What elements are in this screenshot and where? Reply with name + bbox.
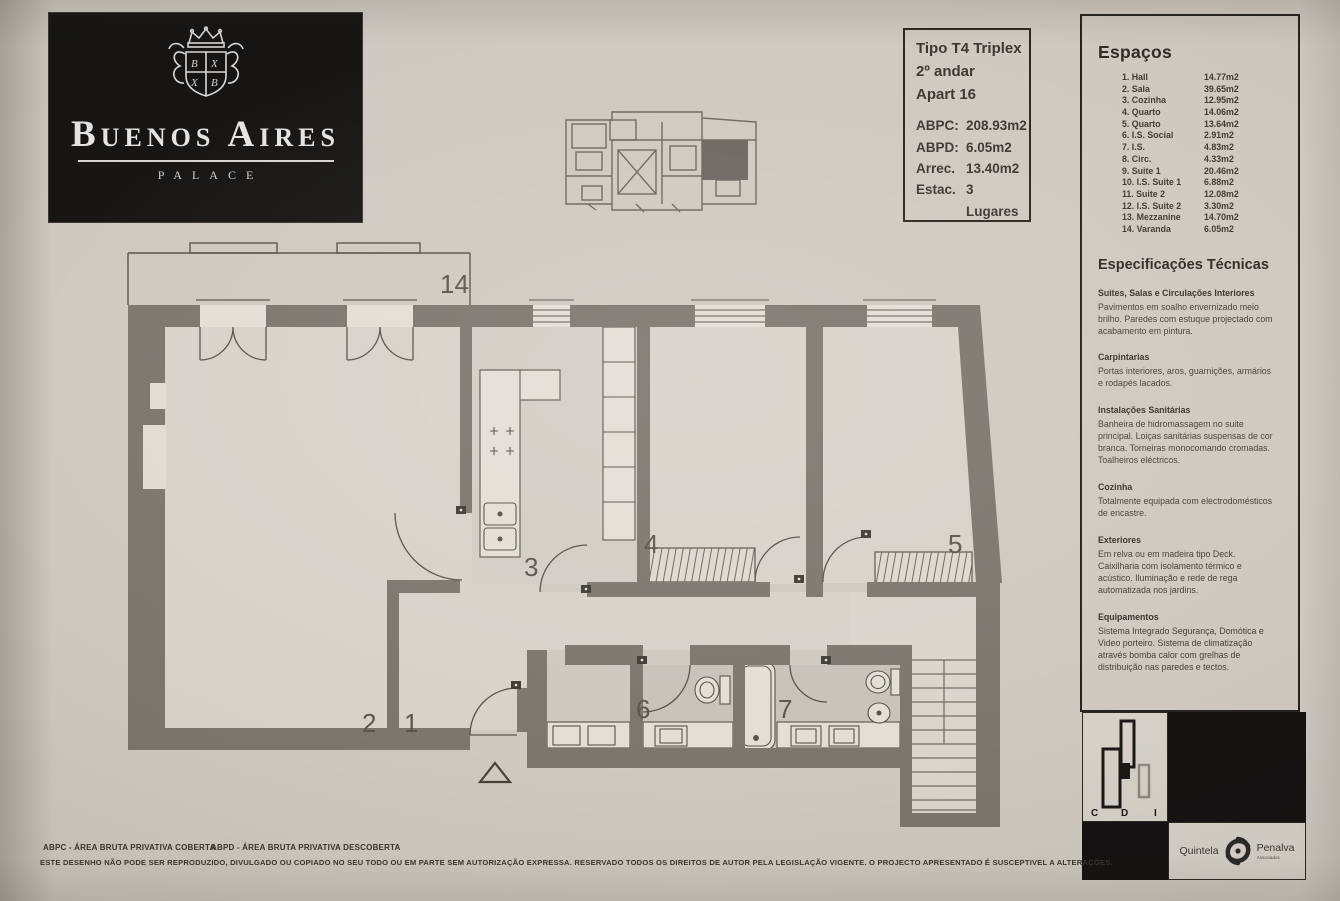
space-row: 11. Suite 212.08m2 — [1122, 189, 1286, 201]
buenos-aires-logo-box: BX XB Buenos Aires PALACE — [48, 12, 363, 223]
metric-label: Estac. — [916, 179, 966, 222]
entrance-arrow — [480, 763, 510, 782]
space-row: 4. Quarto14.06m2 — [1122, 107, 1286, 119]
space-area: 6.05m2 — [1204, 224, 1286, 236]
metric-arrec: Arrec. 13.40m2 — [916, 158, 1029, 179]
space-area: 4.83m2 — [1204, 142, 1286, 154]
brand-block: C D I Quintela Penalva Associados — [1082, 712, 1306, 880]
space-area: 14.70m2 — [1204, 212, 1286, 224]
space-label: 6. I.S. Social — [1122, 130, 1204, 142]
penalva-sublabel: Associados — [1257, 855, 1280, 860]
cdi-letter-d: D — [1121, 808, 1128, 819]
space-row: 12. I.S. Suite 23.30m2 — [1122, 201, 1286, 213]
abpd-definition: ABPD - ÁREA BRUTA PRIVATIVA DESCOBERTA — [211, 843, 401, 852]
brand-subtitle: PALACE — [148, 168, 264, 183]
room-label-is: 7 — [778, 694, 792, 724]
unit-metrics: ABPC: 208.93m2 ABPD: 6.05m2 Arrec. 13.40… — [916, 115, 1029, 222]
cdi-logo-box: C D I — [1082, 712, 1168, 822]
spec-section: Suites, Salas e Circulações InterioresPa… — [1098, 288, 1286, 338]
room-label-hall: 1 — [404, 708, 418, 738]
room-label-cozinha: 3 — [524, 552, 538, 582]
spec-heading: Instalações Sanitárias — [1098, 405, 1286, 415]
spec-body: Totalmente equipada com electrodoméstico… — [1098, 496, 1276, 520]
unit-info-box: Tipo T4 Triplex 2º andar Apart 16 ABPC: … — [903, 28, 1031, 222]
metric-value: 13.40m2 — [966, 158, 1029, 179]
space-label: 3. Cozinha — [1122, 95, 1204, 107]
space-label: 7. I.S. — [1122, 142, 1204, 154]
space-label: 5. Quarto — [1122, 119, 1204, 131]
svg-text:X: X — [190, 77, 199, 89]
unit-floor: 2º andar — [916, 61, 1029, 84]
space-row: 1. Hall14.77m2 — [1122, 72, 1286, 84]
cdi-logo-icon: C D I — [1083, 713, 1166, 820]
cdi-letter-i: I — [1154, 808, 1157, 819]
spec-body: Portas interiores, aros, guarnições, arm… — [1098, 366, 1276, 390]
metric-label: ABPC: — [916, 115, 966, 136]
space-area: 14.77m2 — [1204, 72, 1286, 84]
brand-rule — [78, 160, 334, 162]
space-label: 12. I.S. Suite 2 — [1122, 201, 1204, 213]
space-area: 4.33m2 — [1204, 154, 1286, 166]
space-label: 11. Suite 2 — [1122, 189, 1204, 201]
spec-section: EquipamentosSistema Integrado Segurança,… — [1098, 612, 1286, 674]
space-row: 5. Quarto13.64m2 — [1122, 119, 1286, 131]
metric-label: ABPD: — [916, 137, 966, 158]
space-row: 13. Mezzanine14.70m2 — [1122, 212, 1286, 224]
space-row: 8. Circ.4.33m2 — [1122, 154, 1286, 166]
metric-label: Arrec. — [916, 158, 966, 179]
quintela-label: Quintela — [1179, 845, 1218, 857]
svg-text:B: B — [211, 77, 218, 89]
spec-section: CarpintariasPortas interiores, aros, gua… — [1098, 352, 1286, 390]
quintela-penalva-swirl-icon — [1223, 833, 1253, 869]
space-row: 6. I.S. Social2.91m2 — [1122, 130, 1286, 142]
svg-text:B: B — [191, 58, 198, 70]
copyright-disclaimer: ESTE DESENHO NÃO PODE SER REPRODUZIDO, D… — [40, 858, 1113, 867]
space-area: 6.88m2 — [1204, 177, 1286, 189]
specs-sections: Suites, Salas e Circulações InterioresPa… — [1098, 288, 1286, 674]
spec-body: Sistema Integrado Segurança, Domótica e … — [1098, 626, 1276, 674]
space-label: 1. Hall — [1122, 72, 1204, 84]
storage-fixtures — [547, 722, 630, 748]
scanned-floorplan-sheet: BX XB Buenos Aires PALACE Tipo T4 Triple… — [0, 0, 1340, 901]
space-label: 4. Quarto — [1122, 107, 1204, 119]
metric-estac: Estac. 3 Lugares — [916, 179, 1029, 222]
spec-body: Banheira de hidromassagem no suite princ… — [1098, 419, 1276, 467]
penalva-label: Penalva — [1257, 842, 1295, 854]
spec-heading: Suites, Salas e Circulações Interiores — [1098, 288, 1286, 298]
location-key-plan — [552, 100, 767, 222]
spec-heading: Exteriores — [1098, 535, 1286, 545]
abpc-definition: ABPC - ÁREA BRUTA PRIVATIVA COBERTA — [43, 843, 215, 852]
space-area: 39.65m2 — [1204, 84, 1286, 96]
room-label-quarto4: 4 — [644, 529, 658, 559]
black-panel-bottom — [1082, 822, 1168, 880]
unit-type: Tipo T4 Triplex — [916, 38, 1029, 61]
space-area: 12.95m2 — [1204, 95, 1286, 107]
heraldic-crest-icon: BX XB — [131, 26, 281, 114]
specs-title: Especificações Técnicas — [1098, 257, 1286, 273]
space-label: 10. I.S. Suite 1 — [1122, 177, 1204, 189]
space-label: 14. Varanda — [1122, 224, 1204, 236]
spec-body: Pavimentos em soalho envernizado meio br… — [1098, 302, 1276, 338]
space-area: 14.06m2 — [1204, 107, 1286, 119]
space-label: 13. Mezzanine — [1122, 212, 1204, 224]
space-area: 12.08m2 — [1204, 189, 1286, 201]
space-area: 20.46m2 — [1204, 166, 1286, 178]
space-row: 9. Suite 120.46m2 — [1122, 166, 1286, 178]
space-row: 2. Sala39.65m2 — [1122, 84, 1286, 96]
space-row: 7. I.S.4.83m2 — [1122, 142, 1286, 154]
space-label: 2. Sala — [1122, 84, 1204, 96]
spec-heading: Cozinha — [1098, 482, 1286, 492]
spec-body: Em relva ou em madeira tipo Deck. Caixil… — [1098, 549, 1276, 597]
metric-value: 6.05m2 — [966, 137, 1029, 158]
unit-number: Apart 16 — [916, 84, 1029, 107]
spec-section: CozinhaTotalmente equipada com electrodo… — [1098, 482, 1286, 520]
space-label: 8. Circ. — [1122, 154, 1204, 166]
space-area: 2.91m2 — [1204, 130, 1286, 142]
svg-text:X: X — [210, 58, 219, 70]
space-area: 13.64m2 — [1204, 119, 1286, 131]
spec-heading: Carpintarias — [1098, 352, 1286, 362]
apartment-location-highlight — [702, 140, 748, 180]
cdi-letter-c: C — [1091, 808, 1098, 819]
floor-plan-drawing: 14 2 1 3 4 5 6 7 — [110, 235, 1010, 845]
brand-name: Buenos Aires — [71, 116, 340, 153]
metric-value: 3 Lugares — [966, 179, 1029, 222]
space-row: 10. I.S. Suite 16.88m2 — [1122, 177, 1286, 189]
metric-abpc: ABPC: 208.93m2 — [916, 115, 1029, 136]
room-label-quarto5: 5 — [948, 529, 962, 559]
spaces-list: 1. Hall14.77m22. Sala39.65m23. Cozinha12… — [1098, 72, 1286, 236]
metric-abpd: ABPD: 6.05m2 — [916, 137, 1029, 158]
room-label-sala: 2 — [362, 708, 376, 738]
room-label-varanda: 14 — [440, 269, 469, 299]
spec-section: Instalações SanitáriasBanheira de hidrom… — [1098, 405, 1286, 467]
room-label-is-social: 6 — [636, 694, 650, 724]
quintela-penalva-logo-box: Quintela Penalva Associados — [1168, 822, 1306, 880]
black-panel-top — [1168, 712, 1306, 822]
space-label: 9. Suite 1 — [1122, 166, 1204, 178]
balcony-outline — [128, 243, 470, 305]
spec-heading: Equipamentos — [1098, 612, 1286, 622]
space-row: 3. Cozinha12.95m2 — [1122, 95, 1286, 107]
spec-section: ExterioresEm relva ou em madeira tipo De… — [1098, 535, 1286, 597]
metric-value: 208.93m2 — [966, 115, 1029, 136]
spaces-title: Espaços — [1098, 42, 1286, 63]
space-row: 14. Varanda6.05m2 — [1122, 224, 1286, 236]
space-area: 3.30m2 — [1204, 201, 1286, 213]
spec-panel: Espaços 1. Hall14.77m22. Sala39.65m23. C… — [1080, 14, 1300, 712]
